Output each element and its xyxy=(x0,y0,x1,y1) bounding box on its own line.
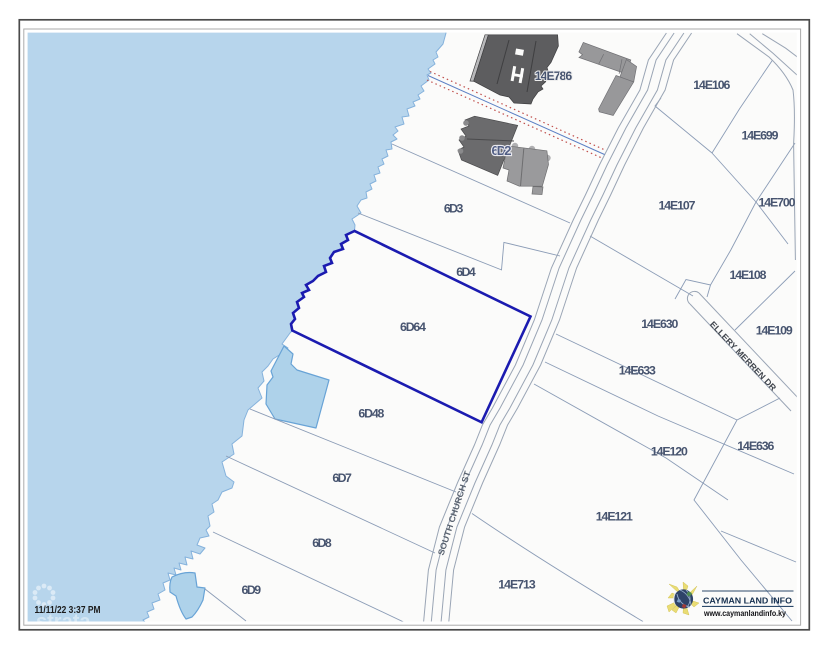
svg-text:14E636: 14E636 xyxy=(737,439,774,453)
svg-text:14E106: 14E106 xyxy=(693,78,730,92)
svg-text:6D7: 6D7 xyxy=(332,471,352,485)
svg-text:11/11/22 3:37 PM: 11/11/22 3:37 PM xyxy=(35,605,101,616)
svg-text:6D64: 6D64 xyxy=(400,320,426,334)
svg-text:CAYMAN LAND INFO: CAYMAN LAND INFO xyxy=(703,595,793,605)
svg-text:6D3: 6D3 xyxy=(444,202,464,216)
svg-text:6D8: 6D8 xyxy=(312,536,332,550)
svg-text:6D48: 6D48 xyxy=(358,406,384,420)
svg-text:14E699: 14E699 xyxy=(742,128,779,142)
svg-text:14E108: 14E108 xyxy=(730,268,767,282)
svg-text:www.caymanlandinfo.ky: www.caymanlandinfo.ky xyxy=(703,609,787,618)
svg-text:14E713: 14E713 xyxy=(498,577,536,591)
svg-text:14E786: 14E786 xyxy=(535,69,573,83)
svg-text:6D4: 6D4 xyxy=(456,265,476,279)
svg-text:14E700: 14E700 xyxy=(759,195,796,209)
svg-text:6D9: 6D9 xyxy=(242,583,262,597)
svg-text:14E107: 14E107 xyxy=(659,199,696,213)
svg-text:14E121: 14E121 xyxy=(596,510,633,524)
svg-text:14E633: 14E633 xyxy=(619,363,656,377)
svg-text:14E630: 14E630 xyxy=(641,317,678,331)
svg-text:14E109: 14E109 xyxy=(756,323,793,337)
svg-text:6D2: 6D2 xyxy=(492,143,512,158)
svg-text:14E120: 14E120 xyxy=(651,445,688,459)
